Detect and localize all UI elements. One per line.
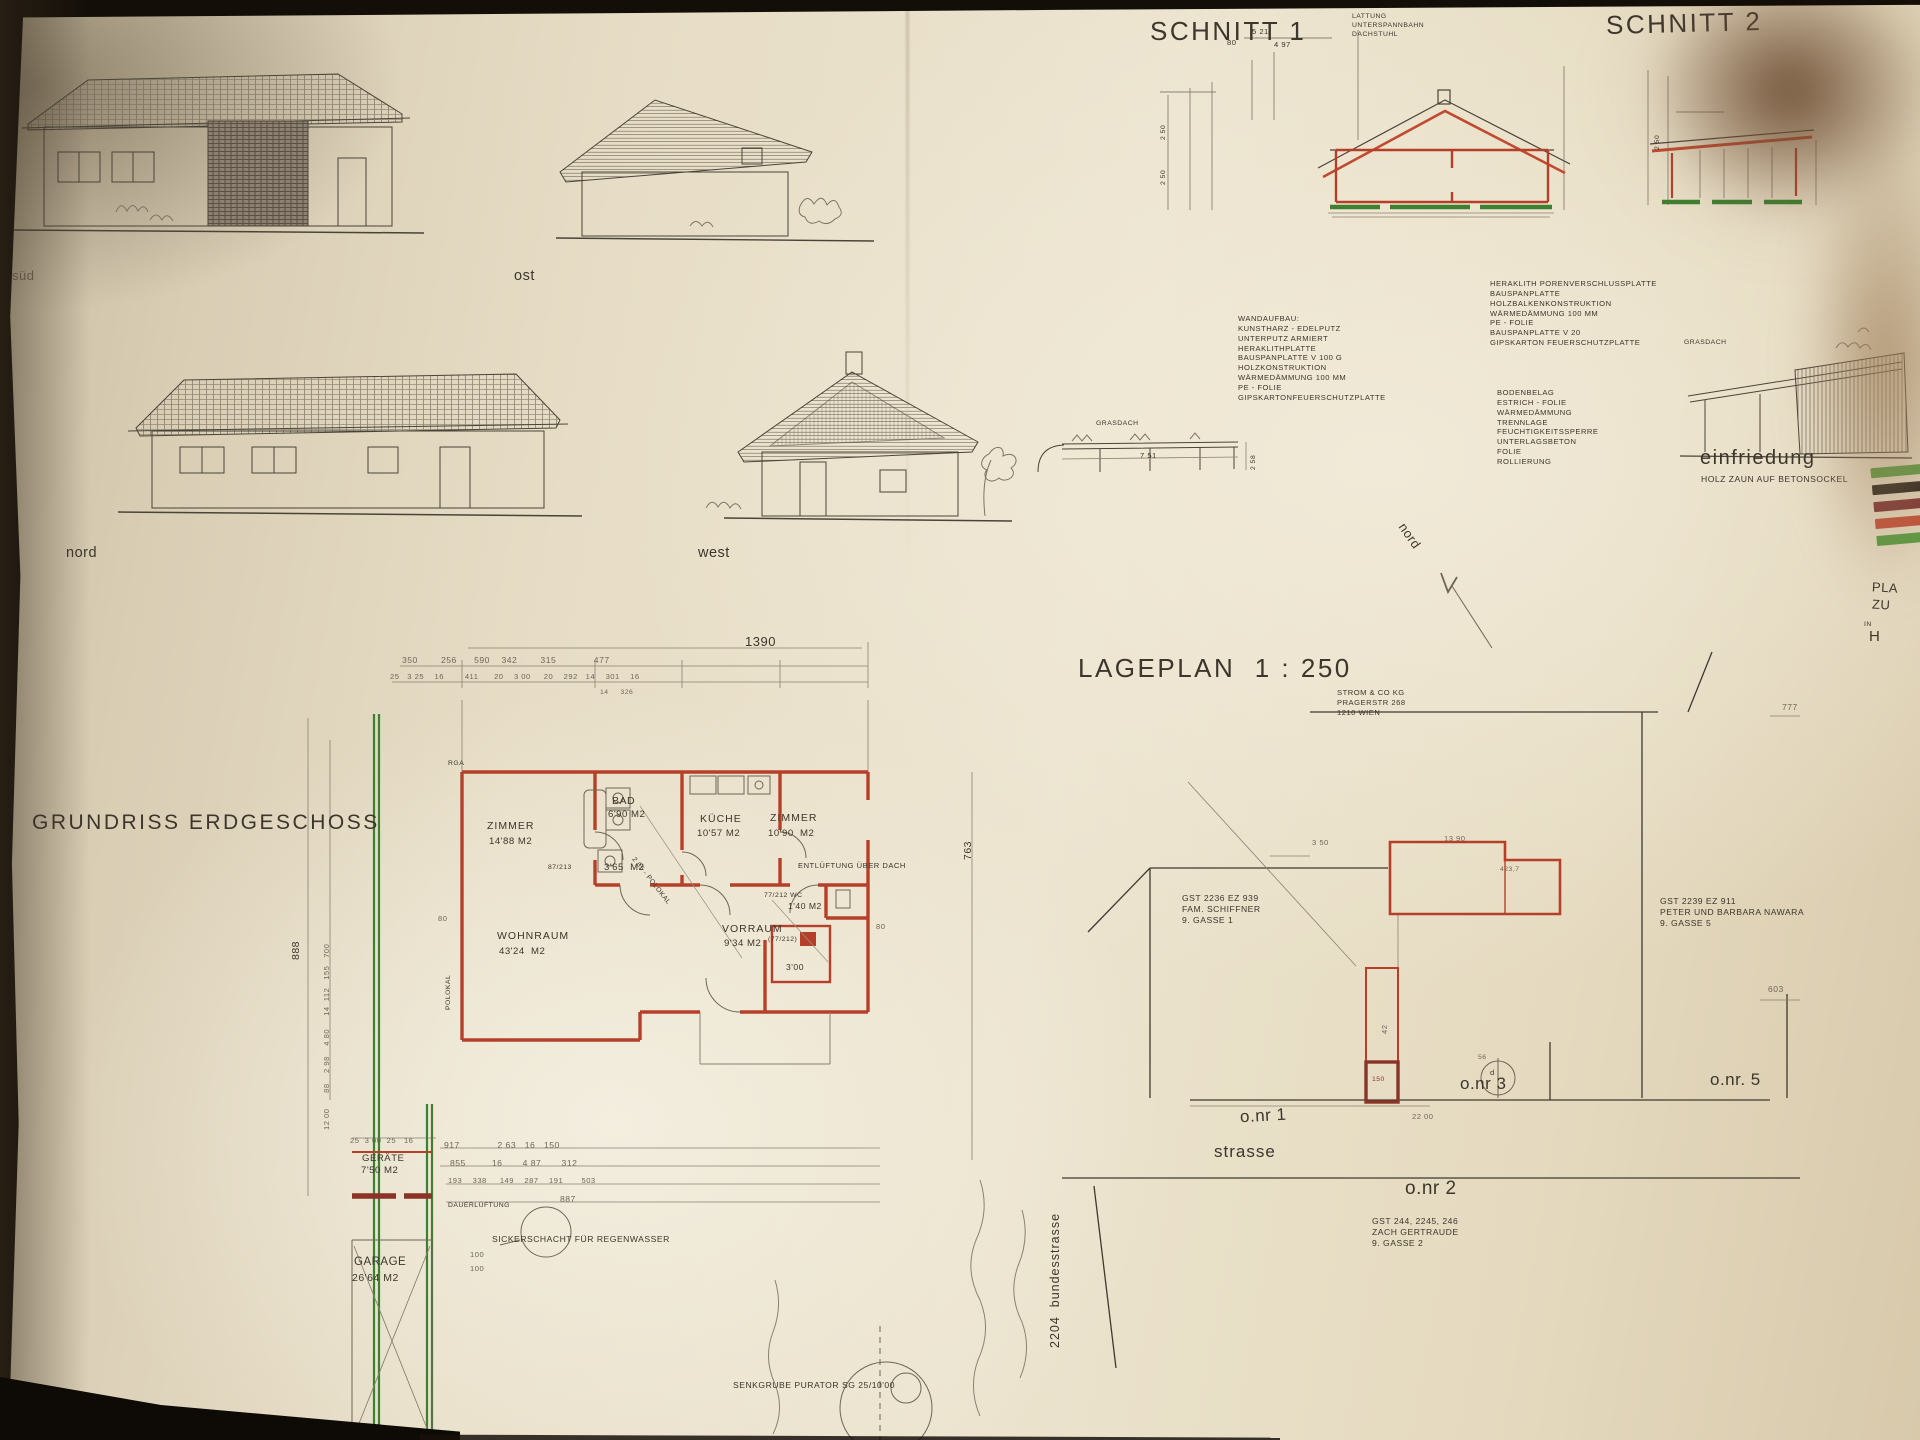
room-zimmer2-area: 10'90 M2	[768, 828, 814, 840]
utility-note: STROM & CO KG PRAGERSTR 268 1210 WIEN	[1337, 688, 1406, 718]
onr1-label: o.nr 1	[1239, 1105, 1286, 1128]
deckenaufbau-note: HERAKLITH PORENVERSCHLUSSPLATTE BAUSPANP…	[1490, 279, 1657, 348]
room-wc-area: 1'40 M2	[788, 901, 822, 911]
sickerschacht-note: SICKERSCHACHT FÜR REGENWASSER	[492, 1234, 670, 1244]
schnitt1-dim-521: 5 21	[1252, 27, 1269, 36]
room-wc-tag: 77/212 WC	[764, 892, 803, 900]
room-wohnraum-area: 43'24 M2	[499, 946, 545, 958]
lageplan-dim-42: 42	[1380, 1025, 1389, 1034]
ost-label: ost	[514, 268, 535, 285]
room-wohnraum-name: WOHNRAUM	[497, 930, 569, 943]
sicker-dim-100b: 100	[470, 1264, 484, 1273]
einfriedung-title: einfriedung	[1700, 446, 1815, 470]
lageplan-dim-2200: 22 00	[1412, 1112, 1434, 1121]
grasdach-label-mid: GRASDACH	[1096, 420, 1139, 428]
dim-overall-1390: 1390	[745, 634, 776, 650]
door-tag-2: (77/212)	[768, 936, 797, 944]
left-shadow	[0, 0, 90, 1440]
entlueftung-note: ENTLÜFTUNG ÜBER DACH	[798, 861, 906, 870]
lageplan-title: LAGEPLAN 1 : 250	[1078, 653, 1352, 684]
door-tag-1: 87/213	[548, 864, 572, 872]
parcel-right-note: GST 2239 EZ 911 PETER UND BARBARA NAWARA…	[1660, 896, 1804, 930]
dim-80-left: 80	[438, 914, 447, 923]
bodenaufbau-note: BODENBELAG ESTRICH - FOLIE WÄRMEDÄMMUNG …	[1497, 388, 1598, 467]
room-garage-name: GARAGE	[354, 1256, 406, 1270]
room-kueche-area: 10'57 M2	[697, 828, 740, 840]
grasdach-dim-751: 7 51	[1140, 451, 1157, 460]
titleblock-line4: H	[1869, 628, 1880, 646]
senkgrube-note: SENKGRUBE PURATOR SG 25/10'00	[733, 1380, 895, 1390]
dim-top-chain: 350 256 590 342 315 477	[402, 655, 610, 665]
room-kueche-name: KÜCHE	[700, 813, 742, 826]
room-bad-area: 6'90 M2	[608, 809, 645, 821]
room-vorraum-name: VORRAUM	[722, 923, 783, 936]
sicker-dim-100a: 100	[470, 1250, 484, 1259]
room-geraete-area: 7'50 M2	[361, 1165, 398, 1177]
plan-photo: SCHNITT 1 SCHNITT 2 LATTUNG UNTERSPANNBA…	[0, 0, 1920, 1440]
grasdach-dim-258: 2 58	[1250, 455, 1258, 470]
room-zimmer1-name: ZIMMER	[487, 820, 534, 833]
dim-top-chain3: 14 326	[600, 689, 633, 697]
lageplan-dim-150: 150	[1372, 1076, 1385, 1084]
room-abstell-area: 3'00	[786, 962, 804, 972]
lageplan-dim-777: 777	[1782, 702, 1798, 712]
lageplan-nord-label: nord	[1395, 520, 1424, 552]
roof-note: LATTUNG UNTERSPANNBAHN DACHSTUHL	[1352, 13, 1424, 39]
onr3-label: o.nr 3	[1460, 1074, 1506, 1094]
rga-tag: RGA	[448, 760, 464, 768]
dim-80-right: 80	[876, 922, 885, 931]
wandaufbau-note: WANDAUFBAU: KUNSTHARZ - EDELPUTZ UNTERPU…	[1238, 314, 1386, 403]
polokal-note-vertical: POLOKAL	[445, 975, 453, 1010]
room-zimmer1-area: 14'88 M2	[489, 836, 532, 848]
room-garage-area: 26'64 M2	[352, 1272, 399, 1285]
strasse-label: strasse	[1214, 1142, 1276, 1162]
room-vorraum-area: 9'34 M2	[724, 938, 761, 950]
parcel-left-note: GST 2236 EZ 939 FAM. SCHIFFNER 9. GASSE …	[1182, 893, 1261, 927]
lageplan-dim-4237: 423,7	[1500, 866, 1520, 874]
lageplan-dim-350: 3 50	[1312, 838, 1329, 847]
parcel-bottom-note: GST 244, 2245, 246 ZACH GERTRAUDE 9. GAS…	[1372, 1216, 1459, 1250]
room-geraete-name: GERÄTE	[362, 1153, 404, 1165]
schnitt1-dim-80: 80	[1227, 38, 1236, 47]
dim-top-chain2: 25 3 25 16 411 20 3 00 20 292 14 301 16	[390, 672, 640, 681]
paper-sheet: SCHNITT 1 SCHNITT 2 LATTUNG UNTERSPANNBA…	[0, 0, 1920, 1440]
schnitt1-dim-250a: 2 50	[1160, 125, 1168, 140]
west-label: west	[698, 545, 730, 562]
paper-crease	[906, 0, 909, 580]
dim-left-chain: 12 00 88 2 98 4 80 14 112 155 700	[322, 944, 331, 1130]
dim-bottom4: 887	[560, 1194, 576, 1204]
bundesstrasse-label: 2204 bundesstrasse	[1048, 1213, 1063, 1348]
dim-geraete-top: 25 3 00 25 16	[350, 1136, 413, 1145]
dim-left-888: 888	[290, 941, 303, 960]
dauerlueftung-note: DAUERLÜFTUNG	[448, 1202, 510, 1210]
labels-layer: SCHNITT 1 SCHNITT 2 LATTUNG UNTERSPANNBA…	[0, 0, 1920, 1440]
onr5-label: o.nr. 5	[1710, 1070, 1761, 1090]
dim-bottom2: 855 16 4 87 312	[450, 1158, 577, 1168]
dim-bottom1: 917 2 63 16 150	[444, 1140, 560, 1150]
grasdach-label-right: GRASDACH	[1684, 339, 1727, 347]
dim-bottom3: 193 338 149 287 191 503	[448, 1176, 596, 1185]
lageplan-dim-56: 56	[1478, 1054, 1487, 1062]
lageplan-dim-1390: 13 90	[1444, 834, 1466, 843]
onr2-label: o.nr 2	[1405, 1178, 1457, 1201]
lageplan-dim-603: 603	[1768, 984, 1784, 994]
room-bad-name: BAD	[612, 795, 635, 808]
polokal-note-diagonal: 2 05 - POLOKAL	[630, 856, 672, 907]
schnitt1-dim-497: 4 97	[1274, 40, 1291, 49]
schnitt1-dim-250b: 2 50	[1160, 170, 1168, 185]
dim-right-763: 763	[962, 841, 975, 860]
room-zimmer2-name: ZIMMER	[770, 812, 817, 825]
tree-symbol-d: d	[1490, 1068, 1495, 1077]
